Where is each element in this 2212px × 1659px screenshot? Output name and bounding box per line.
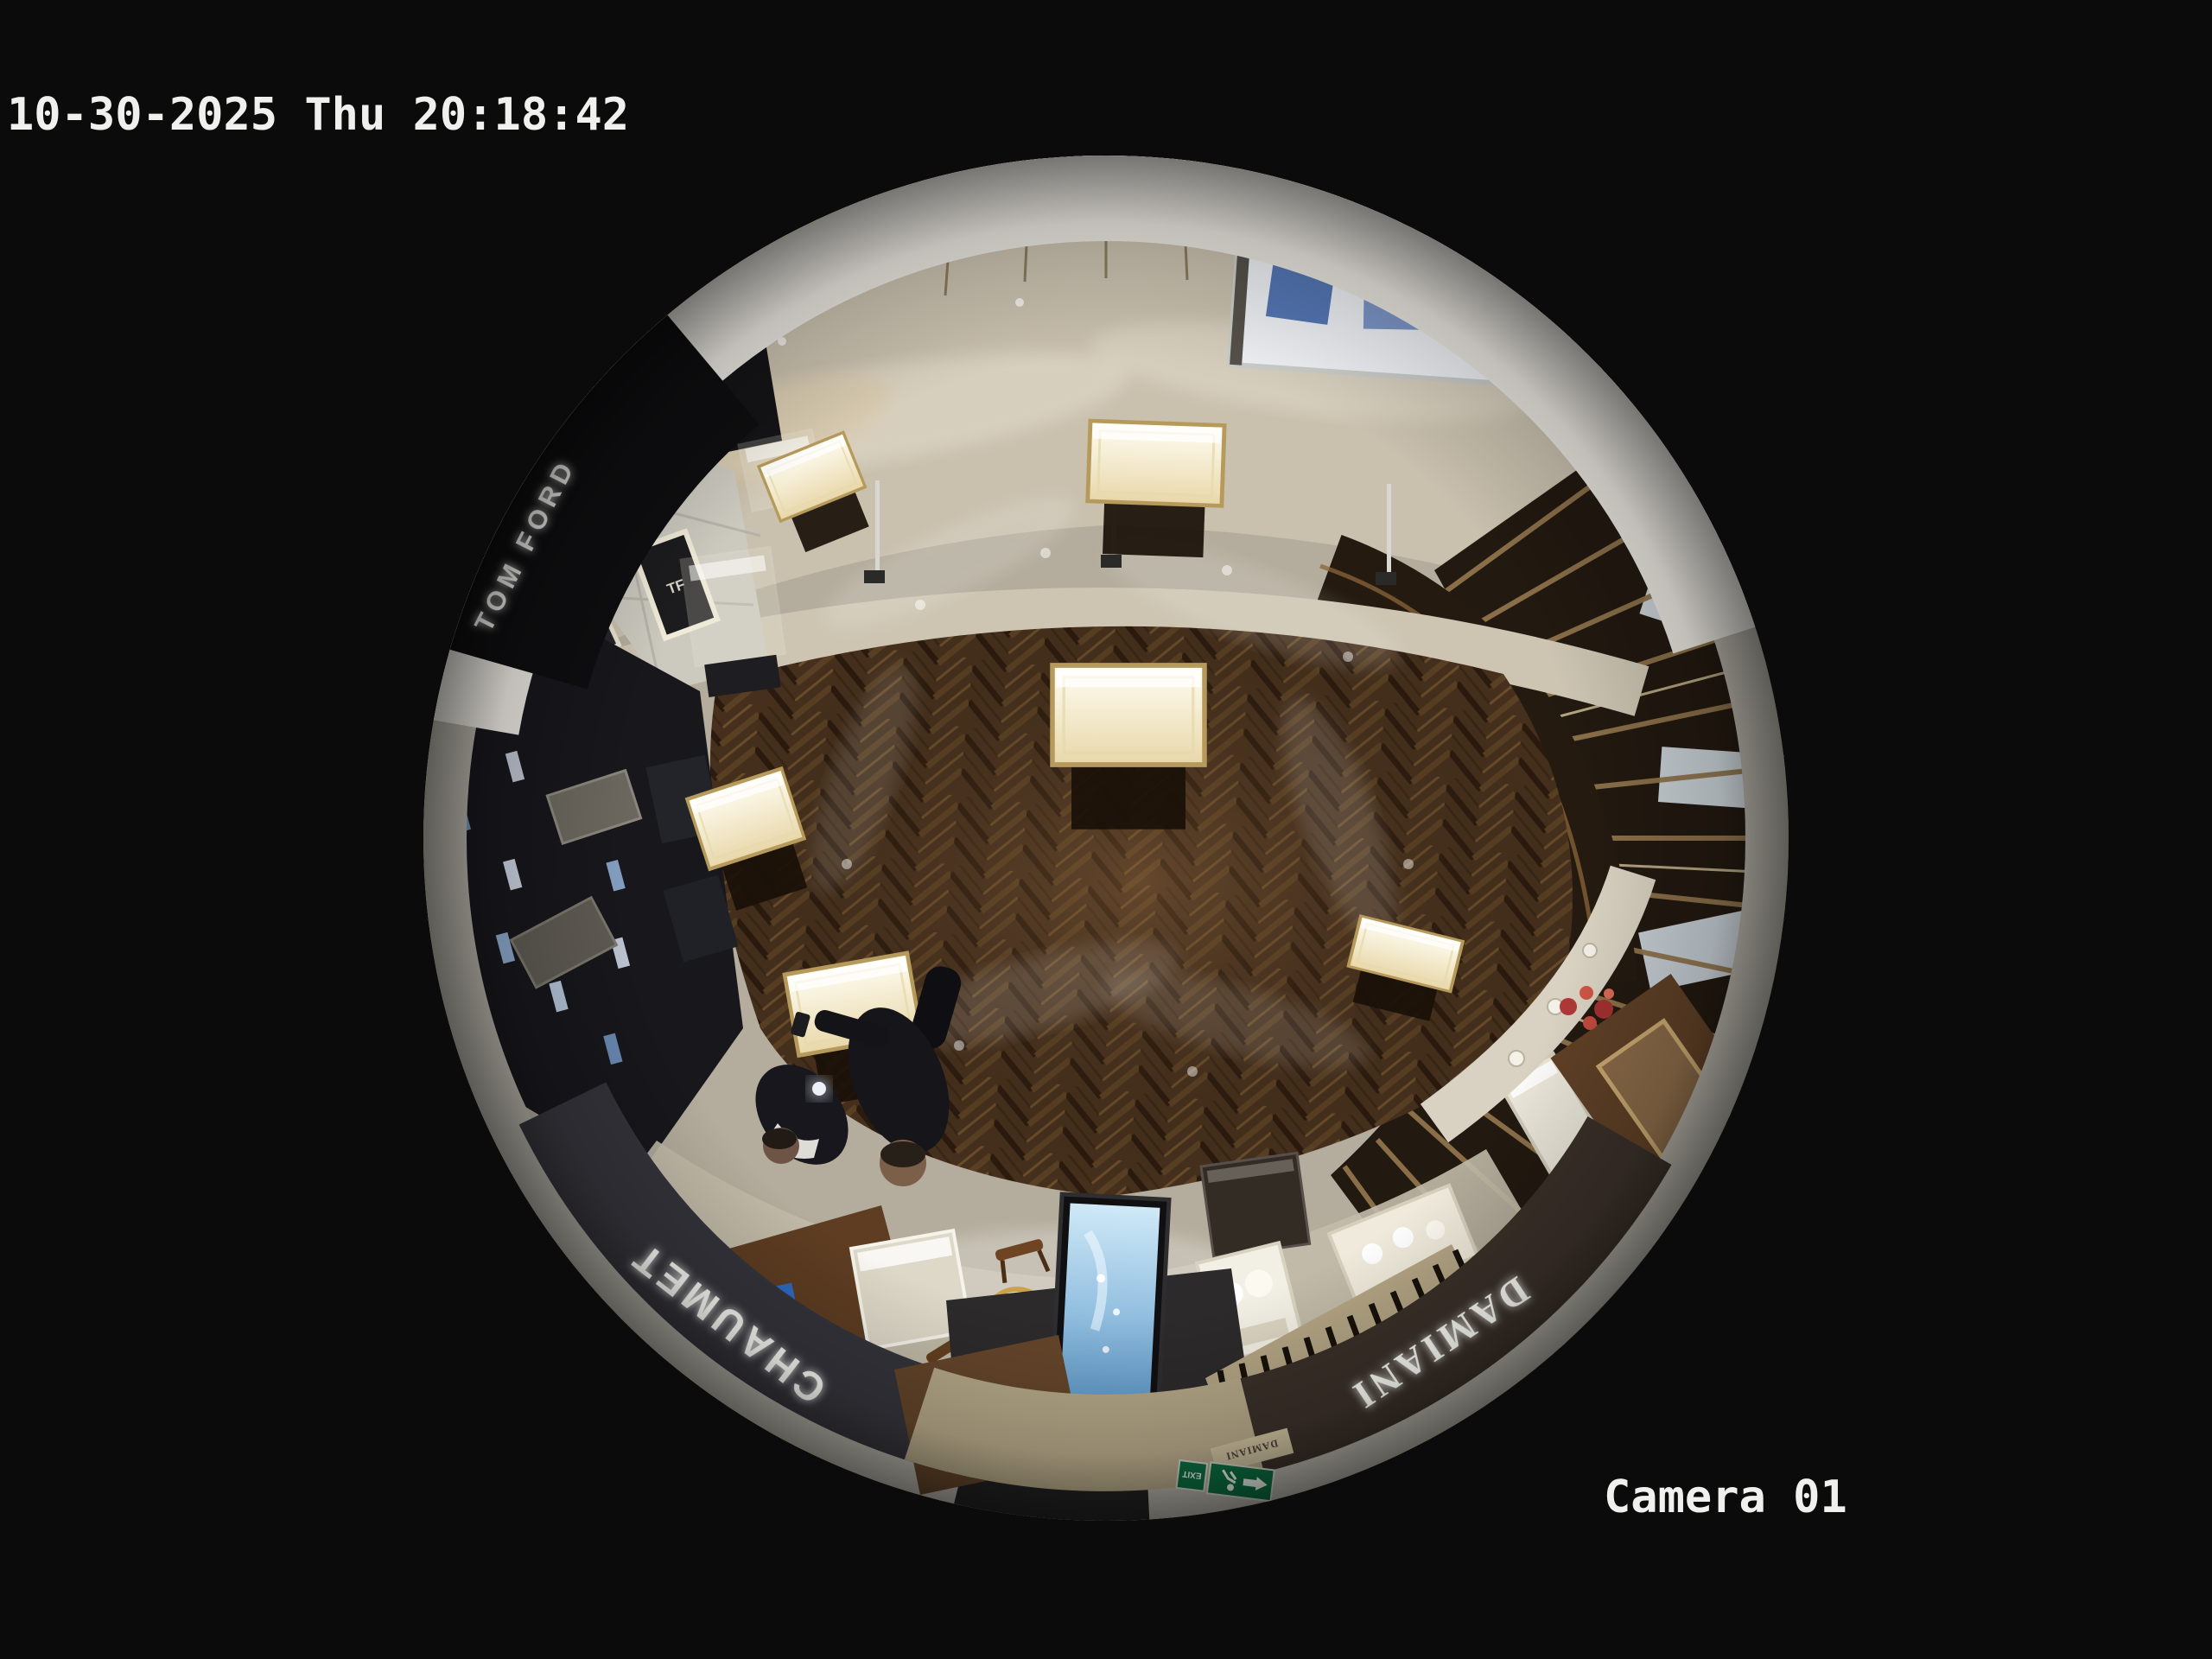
osd-timestamp: 10-30-2025 Thu 20:18:42 — [7, 89, 629, 141]
osd-camera-label: Camera 01 — [1604, 1471, 1847, 1523]
cctv-frame: A.BORGH — [0, 0, 2212, 1659]
lens-vignette — [422, 154, 1790, 1522]
